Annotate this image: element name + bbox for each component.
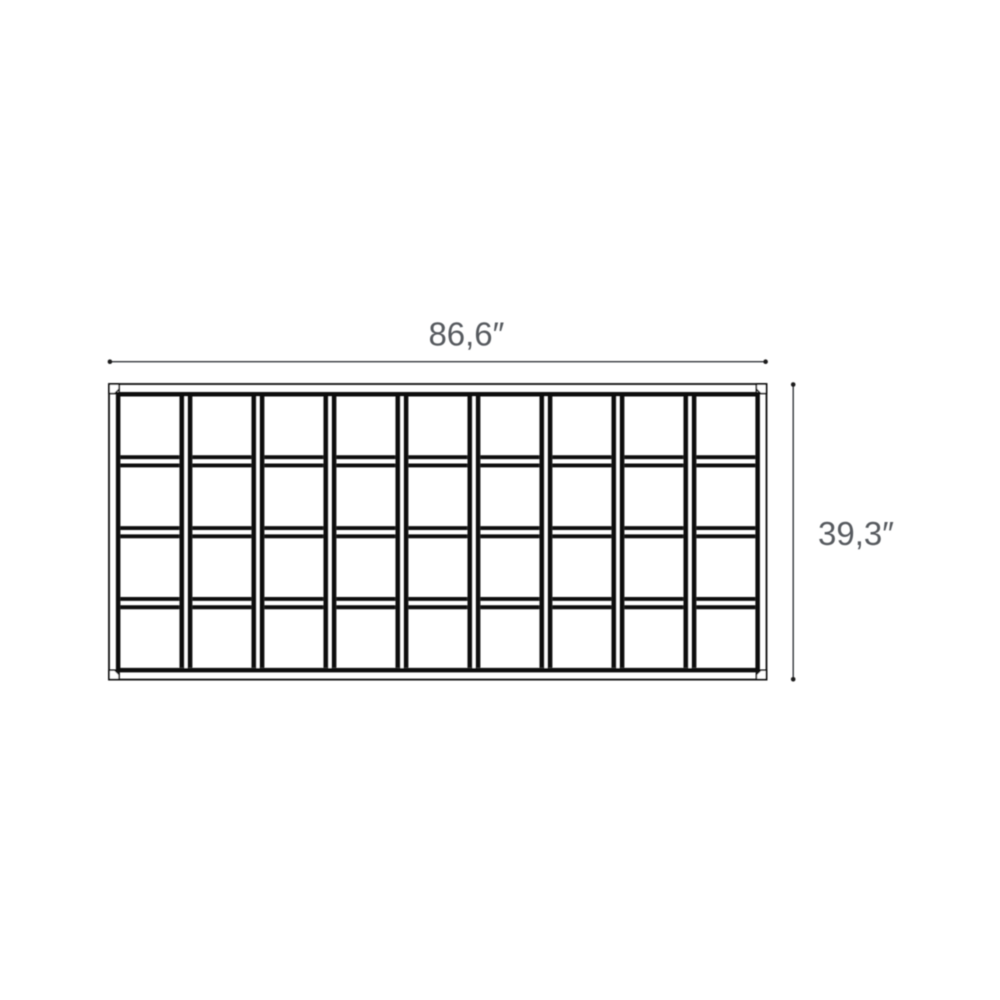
svg-text:39,3″: 39,3″: [818, 515, 894, 552]
svg-text:86,6″: 86,6″: [428, 316, 504, 353]
